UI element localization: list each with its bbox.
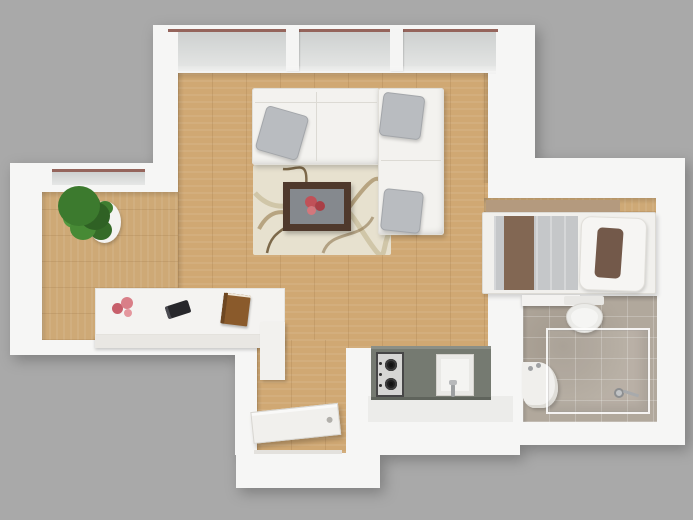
pink-flowers: [121, 297, 133, 309]
window-mullion: [286, 29, 299, 71]
flower-centerpiece: [315, 201, 325, 211]
stove-burner: [385, 378, 397, 390]
sofa-cushion-seam: [381, 160, 441, 161]
gray-throw-pillow: [378, 92, 425, 141]
floor-plan-render: [0, 0, 693, 520]
shower-fixture: [614, 384, 640, 404]
window-mullion: [390, 29, 403, 71]
stove-burner: [385, 359, 397, 371]
kitchen-faucet: [451, 384, 455, 397]
shower-arm: [623, 390, 639, 398]
stove-knob: [379, 362, 382, 365]
door-handle: [326, 417, 333, 424]
sink-tap: [528, 366, 533, 371]
potted-plant: [58, 186, 100, 226]
door-threshold: [254, 450, 342, 454]
accent-pillow: [594, 227, 623, 279]
top-window-frame-line: [168, 29, 498, 32]
flower-centerpiece: [307, 206, 316, 215]
apartment: [0, 0, 693, 520]
sink-tap: [536, 363, 541, 368]
stove-knob: [379, 384, 382, 387]
kitchen-sink: [436, 354, 474, 396]
sideboard-front: [95, 335, 285, 348]
stove-knob: [379, 373, 382, 376]
pink-flowers: [124, 309, 132, 317]
gray-throw-pillow: [380, 188, 424, 234]
bed-blanket-runner: [504, 216, 534, 290]
left-window-glass: [52, 172, 145, 185]
two-burner-stove: [376, 352, 404, 397]
wall-shadow: [178, 73, 488, 80]
top-window-glass: [178, 31, 496, 71]
sideboard-return: [260, 322, 285, 380]
wall-shadow: [42, 192, 47, 340]
sofa-back-seam: [255, 102, 377, 103]
shower-mixer: [614, 388, 624, 398]
book: [220, 292, 251, 326]
wall-shadow: [482, 73, 488, 183]
